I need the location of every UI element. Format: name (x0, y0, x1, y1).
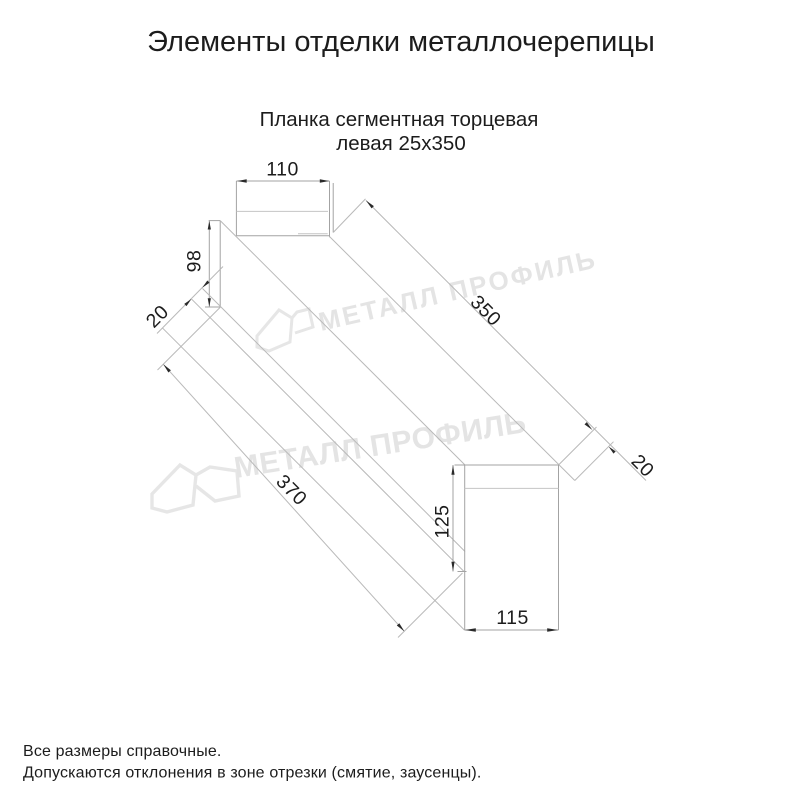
svg-text:115: 115 (496, 607, 529, 629)
svg-text:125: 125 (432, 504, 454, 538)
svg-text:Элементы отделки металлочерепи: Элементы отделки металлочерепицы (147, 26, 655, 58)
svg-text:110: 110 (266, 159, 299, 181)
svg-text:Допускаются отклонения в зоне: Допускаются отклонения в зоне отрезки (с… (23, 765, 482, 782)
svg-text:Все размеры справочные.: Все размеры справочные. (23, 743, 222, 760)
svg-text:левая 25x350: левая 25x350 (336, 132, 465, 155)
svg-text:98: 98 (184, 250, 206, 273)
svg-text:Планка сегментная торцевая: Планка сегментная торцевая (260, 108, 539, 131)
